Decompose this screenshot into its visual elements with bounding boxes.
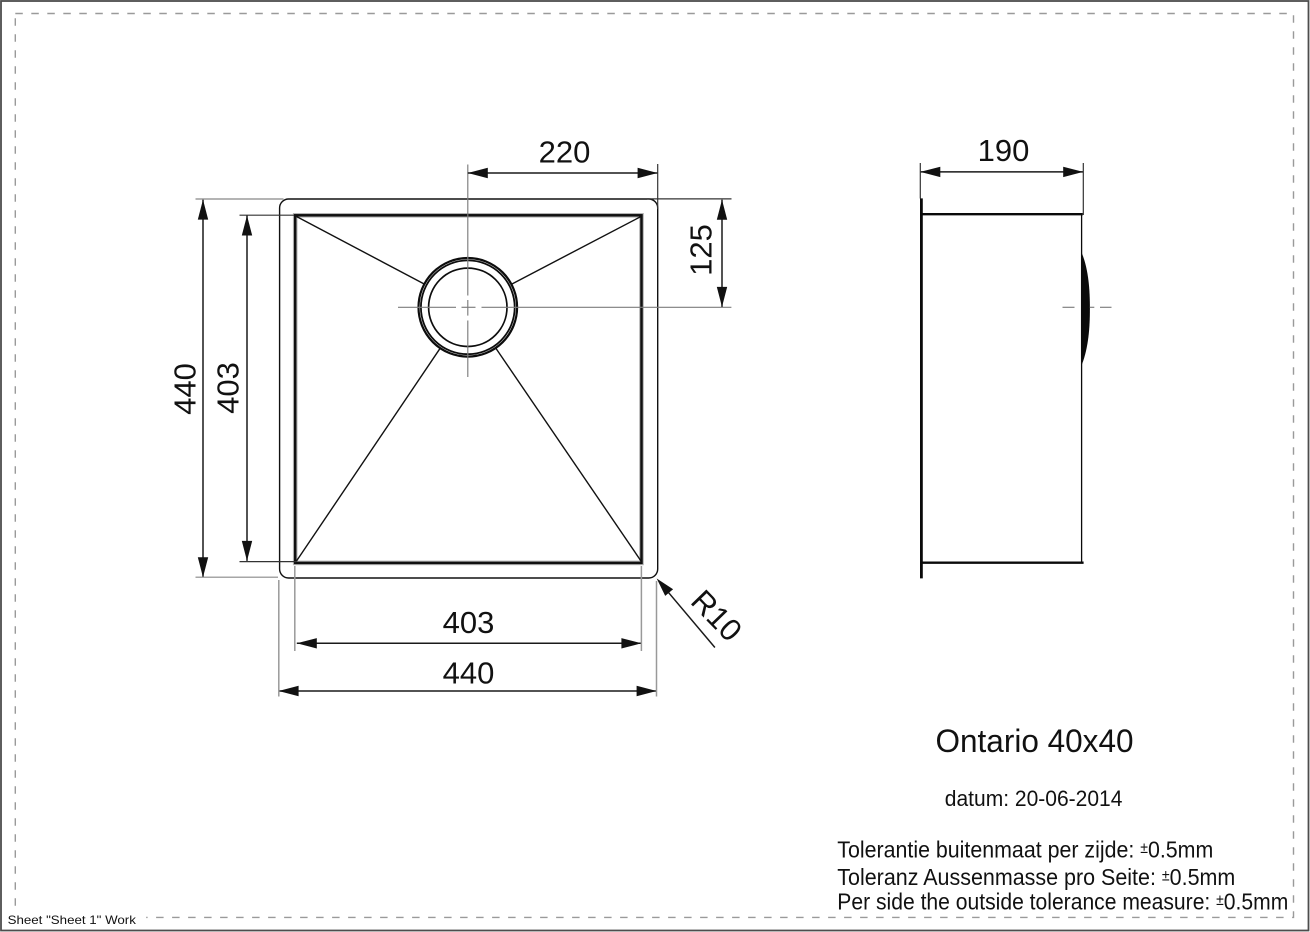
- svg-text:Ontario 40x40: Ontario 40x40: [936, 723, 1134, 759]
- svg-text:Toleranz Aussenmasse pro Seite: Toleranz Aussenmasse pro Seite: ±0.5mm: [837, 864, 1235, 890]
- svg-text:datum: 20-06-2014: datum: 20-06-2014: [945, 786, 1123, 811]
- svg-text:440: 440: [443, 656, 495, 691]
- svg-text:Sheet "Sheet 1" Work: Sheet "Sheet 1" Work: [8, 913, 137, 927]
- svg-text:190: 190: [978, 133, 1030, 168]
- svg-text:125: 125: [684, 224, 719, 276]
- svg-text:440: 440: [168, 363, 203, 415]
- svg-text:Tolerantie buitenmaat per zijd: Tolerantie buitenmaat per zijde: ±0.5mm: [837, 837, 1213, 863]
- svg-text:403: 403: [210, 362, 245, 414]
- svg-text:220: 220: [539, 135, 591, 170]
- svg-text:403: 403: [443, 605, 495, 640]
